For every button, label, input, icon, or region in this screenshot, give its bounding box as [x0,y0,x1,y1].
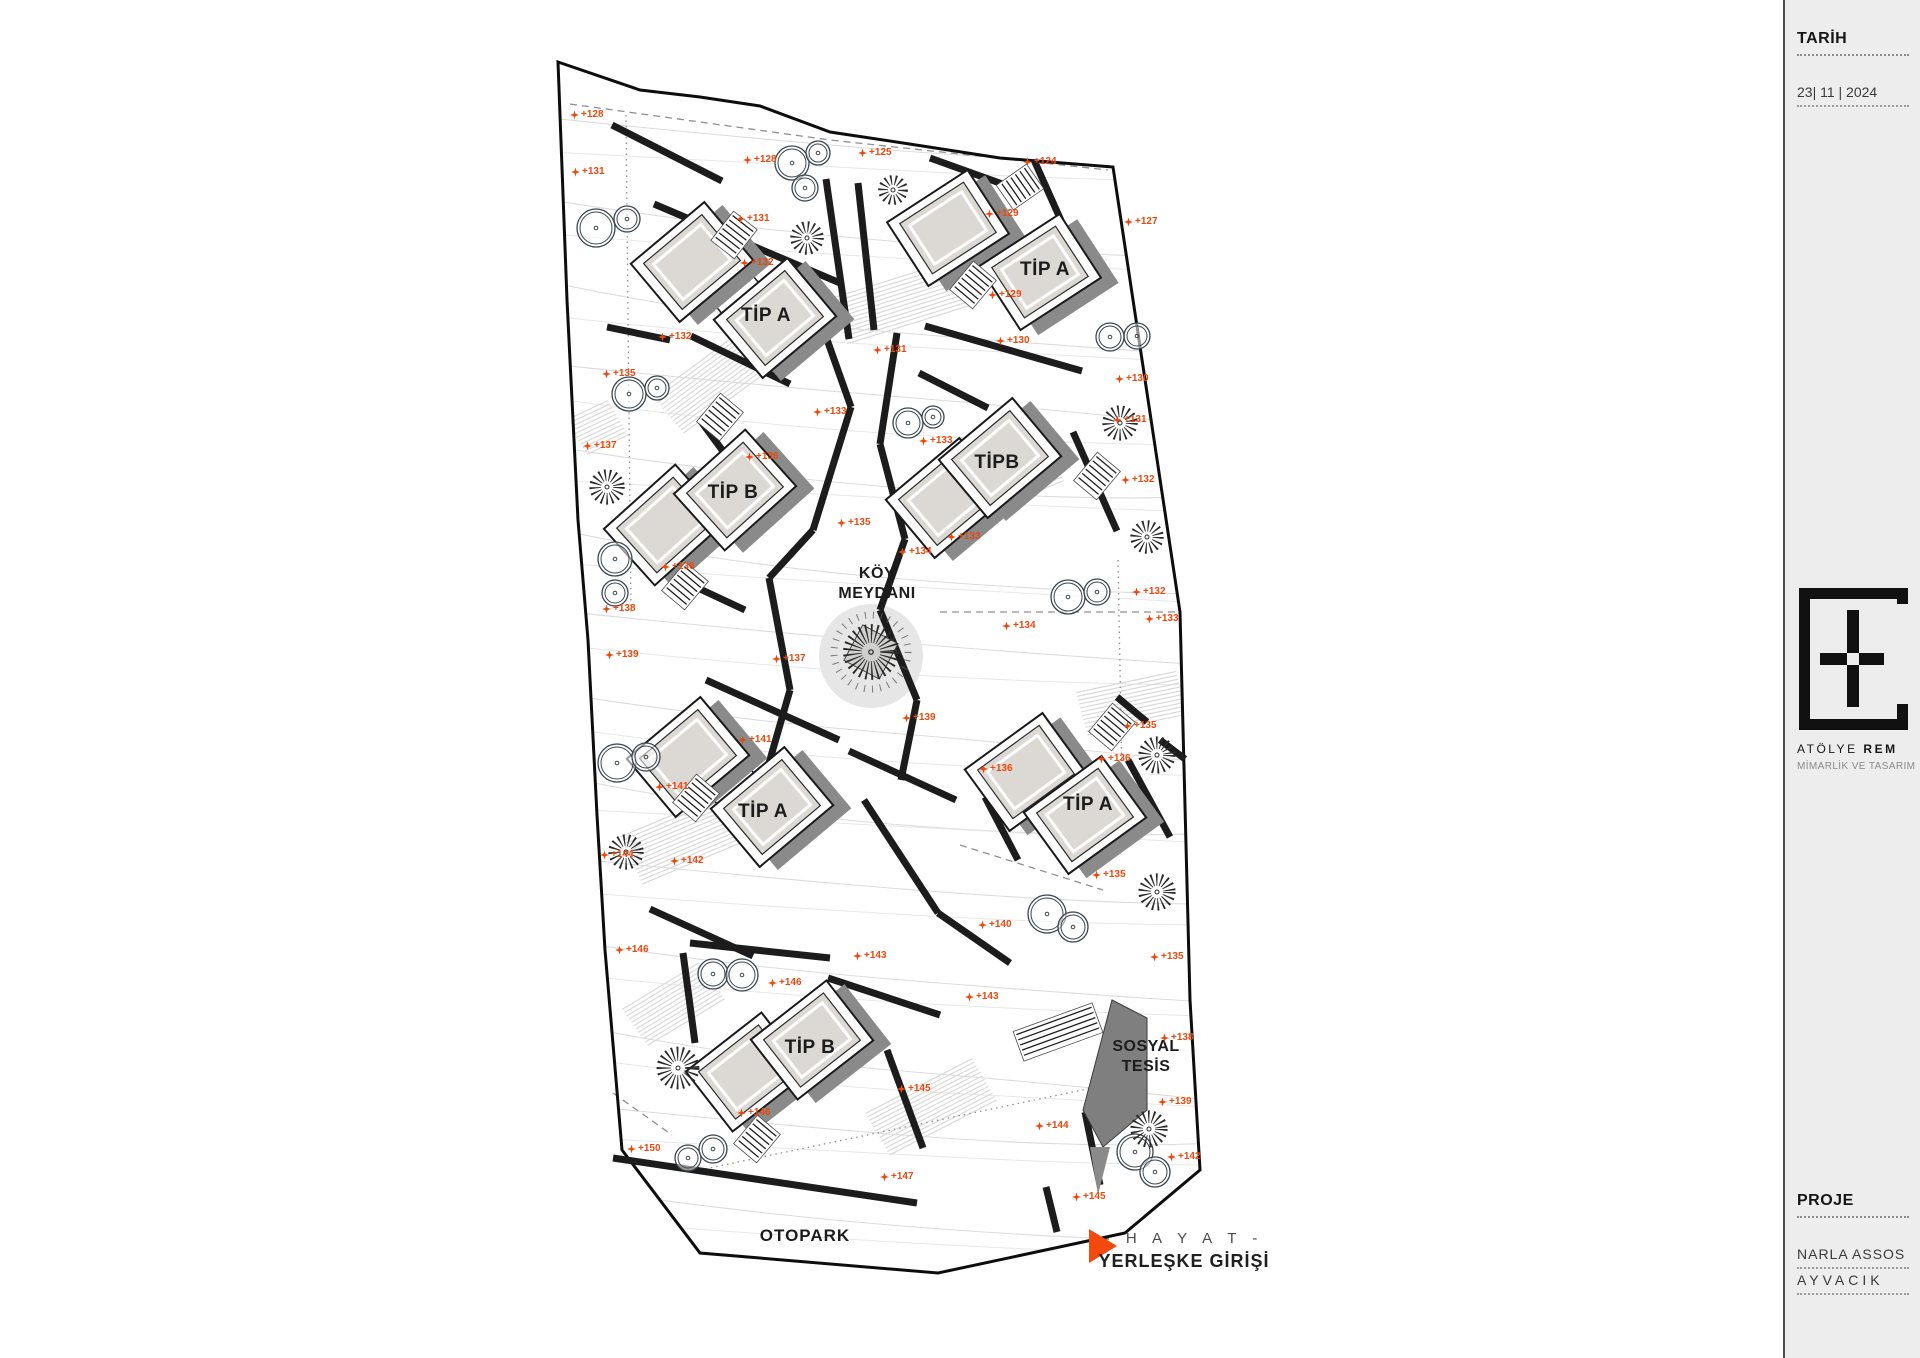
elevation-star-icon [853,952,862,961]
elevation-value: +133 [1156,614,1179,624]
elevation-marker: +131 [873,345,907,355]
elevation-star-icon [655,783,664,792]
elevation-star-icon [743,156,752,165]
elevation-marker: +129 [988,290,1022,300]
tarih-heading: TARİH [1797,30,1909,56]
entrance-girisi-label: YERLEŞKE GİRİŞİ [1098,1251,1269,1272]
elevation-star-icon [1023,158,1032,167]
elevation-value: +139 [616,650,639,660]
elevation-marker: +132 [740,258,774,268]
elevation-marker: +133 [947,532,981,542]
elevation-star-icon [768,979,777,988]
elevation-marker: +132 [1132,587,1166,597]
elevation-marker: +136 [979,764,1013,774]
rem-text: REM [1863,742,1897,756]
elevation-star-icon [602,605,611,614]
elevation-value: +139 [1169,1097,1192,1107]
elevation-marker: +124 [1023,157,1057,167]
elevation-value: +133 [930,436,953,446]
elevation-value: +131 [1124,415,1147,425]
elevation-star-icon [583,442,592,451]
elevation-marker: +133 [919,436,953,446]
elevation-marker: +133 [1145,614,1179,624]
elevation-marker: +135 [837,518,871,528]
elevation-marker: +147 [880,1172,914,1182]
elevation-value: +135 [1134,721,1157,731]
elevation-marker: +130 [996,336,1030,346]
elevation-value: +146 [779,978,802,988]
elevation-value: +131 [884,345,907,355]
elevation-marker: +150 [627,1144,661,1154]
elevation-value: +130 [1007,336,1030,346]
elevation-star-icon [740,259,749,268]
elevation-value: +147 [891,1172,914,1182]
elevation-star-icon [1167,1153,1176,1162]
elevation-value: +146 [626,945,649,955]
elevation-value: +146 [748,1108,771,1118]
elevation-marker: +136 [661,562,695,572]
elevation-star-icon [1150,953,1159,962]
elevation-value: +138 [613,604,636,614]
elevation-star-icon [988,291,997,300]
elevation-star-icon [1035,1122,1044,1131]
sosyal-tesis-label: SOSYALTESİS [1112,1037,1179,1077]
elevation-marker: +136 [745,452,779,462]
atolye-rem-wordmark: ATÖLYE REM [1797,742,1909,756]
elevation-star-icon [745,453,754,462]
elevation-value: +137 [783,654,806,664]
elevation-star-icon [1115,375,1124,384]
elevation-value: +144 [1046,1121,1069,1131]
elevation-star-icon [737,1109,746,1118]
elevation-star-icon [1113,416,1122,425]
building-type-label: TİP A [738,801,788,823]
elevation-value: +141 [666,782,689,792]
elevation-value: +150 [638,1144,661,1154]
elevation-value: +135 [1103,870,1126,880]
elevation-marker: +128 [743,155,777,165]
elevation-star-icon [919,437,928,446]
site-plan-drawing [0,0,1920,1358]
drawing-sheet: KÖYMEYDANI SOSYALTESİS OTOPARK - H A Y A… [0,0,1920,1358]
elevation-value: +133 [824,407,847,417]
elevation-star-icon [1132,588,1141,597]
elevation-value: +135 [1161,952,1184,962]
elevation-marker: +135 [1092,870,1126,880]
elevation-star-icon [837,519,846,528]
elevation-star-icon [898,548,907,557]
elevation-value: +130 [1126,374,1149,384]
elevation-value: +133 [958,532,981,542]
elevation-marker: +141 [738,735,772,745]
elevation-value: +128 [581,110,604,120]
elevation-marker: +131 [1113,415,1147,425]
elevation-value: +136 [1108,754,1131,764]
elevation-value: +131 [747,214,770,224]
elevation-marker: +138 [602,604,636,614]
elevation-marker: +127 [1124,217,1158,227]
elevation-value: +136 [756,452,779,462]
elevation-value: +143 [864,951,887,961]
elevation-star-icon [1123,722,1132,731]
elevation-star-icon [1121,476,1130,485]
elevation-value: +142 [681,856,704,866]
elevation-star-icon [985,210,994,219]
elevation-star-icon [858,149,867,158]
elevation-marker: +137 [583,441,617,451]
elevation-value: +132 [1143,587,1166,597]
elevation-value: +136 [990,764,1013,774]
elevation-star-icon [1072,1193,1081,1202]
elevation-marker: +139 [605,650,639,660]
elevation-star-icon [1145,615,1154,624]
elevation-value: +127 [1135,217,1158,227]
elevation-marker: +144 [1035,1121,1069,1131]
elevation-value: +134 [1013,621,1036,631]
elevation-star-icon [736,215,745,224]
elevation-marker: +132 [658,332,692,342]
elevation-star-icon [979,765,988,774]
otopark-label: OTOPARK [760,1226,850,1246]
elevation-value: +128 [754,155,777,165]
elevation-value: +132 [669,332,692,342]
elevation-star-icon [600,851,609,860]
atolye-rem-logo [1799,588,1908,730]
building-type-label: TİP B [785,1037,836,1059]
building-type-label: TİP A [741,305,791,327]
elevation-marker: +130 [1115,374,1149,384]
elevation-marker: +143 [853,951,887,961]
elevation-value: +135 [613,369,636,379]
proje-name-line2: AYVACIK [1797,1272,1909,1295]
elevation-marker: +133 [813,407,847,417]
elevation-marker: +128 [570,110,604,120]
elevation-value: +125 [869,148,892,158]
elevation-star-icon [965,993,974,1002]
elevation-marker: +141 [655,782,689,792]
elevation-star-icon [772,655,781,664]
elevation-value: +145 [908,1084,931,1094]
elevation-marker: +135 [1123,721,1157,731]
elevation-marker: +134 [898,547,932,557]
elevation-value: +144 [611,850,634,860]
elevation-star-icon [738,736,747,745]
elevation-marker: +146 [615,945,649,955]
elevation-value: +143 [976,992,999,1002]
elevation-value: +124 [1034,157,1057,167]
elevation-marker: +134 [1002,621,1036,631]
building-type-label: TİP A [1020,259,1070,281]
elevation-star-icon [873,346,882,355]
elevation-star-icon [902,714,911,723]
elevation-star-icon [897,1085,906,1094]
elevation-star-icon [1124,218,1133,227]
elevation-value: +134 [909,547,932,557]
elevation-star-icon [570,111,579,120]
elevation-marker: +132 [1121,475,1155,485]
elevation-marker: +136 [1097,754,1131,764]
elevation-star-icon [627,1145,636,1154]
elevation-marker: +145 [1072,1192,1106,1202]
elevation-star-icon [978,921,987,930]
elevation-star-icon [1002,622,1011,631]
building-type-label: TİP A [1063,794,1113,816]
building-type-label: TİP B [708,482,759,504]
elevation-value: +140 [989,920,1012,930]
proje-heading: PROJE [1797,1192,1909,1218]
elevation-marker: +145 [897,1084,931,1094]
elevation-value: +141 [749,735,772,745]
elevation-marker: +131 [736,214,770,224]
elevation-marker: +139 [1158,1097,1192,1107]
elevation-marker: +140 [978,920,1012,930]
elevation-star-icon [1160,1034,1169,1043]
elevation-marker: +129 [985,209,1019,219]
elevation-value: +142 [1178,1152,1201,1162]
elevation-star-icon [996,337,1005,346]
elevation-marker: +125 [858,148,892,158]
elevation-star-icon [602,370,611,379]
elevation-star-icon [658,333,667,342]
entrance-hayat-label: - H A Y A T - [1105,1230,1264,1247]
title-panel: TARİH 23| 11 | 2024 ATÖLYE REM MİMARLİK … [1783,0,1920,1358]
elevation-marker: +131 [571,167,605,177]
elevation-star-icon [605,651,614,660]
elevation-marker: +144 [600,850,634,860]
elevation-marker: +135 [602,369,636,379]
elevation-marker: +146 [768,978,802,988]
elevation-value: +129 [996,209,1019,219]
elevation-value: +138 [1171,1033,1194,1043]
elevation-star-icon [813,408,822,417]
elevation-star-icon [947,533,956,542]
elevation-value: +131 [582,167,605,177]
elevation-marker: +137 [772,654,806,664]
elevation-star-icon [1092,871,1101,880]
elevation-star-icon [1097,755,1106,764]
elevation-value: +132 [1132,475,1155,485]
elevation-marker: +143 [965,992,999,1002]
elevation-star-icon [571,168,580,177]
elevation-value: +137 [594,441,617,451]
atolye-text: ATÖLYE [1797,742,1858,756]
elevation-marker: +142 [1167,1152,1201,1162]
elevation-value: +132 [751,258,774,268]
elevation-star-icon [880,1173,889,1182]
building-type-label: TİPB [974,452,1019,474]
elevation-value: +136 [672,562,695,572]
elevation-star-icon [615,946,624,955]
elevation-marker: +139 [902,713,936,723]
elevation-marker: +142 [670,856,704,866]
elevation-marker: +135 [1150,952,1184,962]
elevation-star-icon [1158,1098,1167,1107]
elevation-marker: +146 [737,1108,771,1118]
logo-subtitle: MİMARLİK VE TASARIM [1797,761,1909,772]
elevation-star-icon [661,563,670,572]
koy-meydani-label: KÖYMEYDANI [838,564,915,604]
elevation-value: +139 [913,713,936,723]
elevation-star-icon [670,857,679,866]
elevation-value: +129 [999,290,1022,300]
elevation-value: +135 [848,518,871,528]
elevation-marker: +138 [1160,1033,1194,1043]
date-value: 23| 11 | 2024 [1797,84,1909,107]
proje-name-line1: NARLA ASSOS [1797,1246,1909,1269]
elevation-value: +145 [1083,1192,1106,1202]
